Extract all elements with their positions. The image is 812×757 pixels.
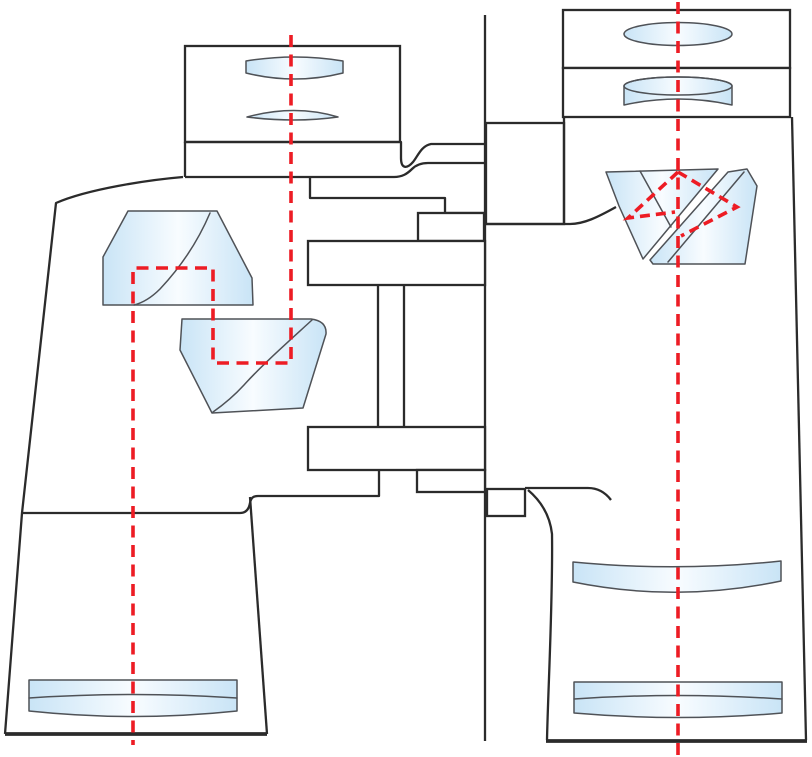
binoculars-cutaway-diagram (0, 0, 812, 757)
optical-elements (29, 23, 782, 718)
right-barrel-right-wall (792, 117, 806, 740)
bridge-step-box (418, 213, 484, 241)
left-porro-prism-lower (180, 319, 326, 413)
bridge-plate-upper (308, 241, 485, 285)
bridge-step-box-lower (417, 470, 485, 492)
right-barrel-armpit-curve (525, 488, 611, 500)
binoculars-cutaway-svg (0, 0, 812, 757)
bridge-step-outline (310, 177, 485, 213)
left-barrel-interior-step (22, 470, 379, 513)
left-eyepiece-collar-top (185, 142, 486, 177)
axle-housing (486, 123, 564, 224)
left-porro-prism-upper (103, 211, 253, 305)
hinge-columns (378, 285, 404, 427)
left-eyepiece-collar-bottom (185, 163, 486, 177)
bridge-plate-lower (308, 427, 485, 470)
left-eye-lens (246, 57, 343, 79)
right-barrel (485, 10, 807, 741)
right-barrel-lower-left-wall (528, 490, 552, 740)
axle-box (487, 489, 525, 516)
left-barrel-right-lower-edge (250, 497, 267, 734)
